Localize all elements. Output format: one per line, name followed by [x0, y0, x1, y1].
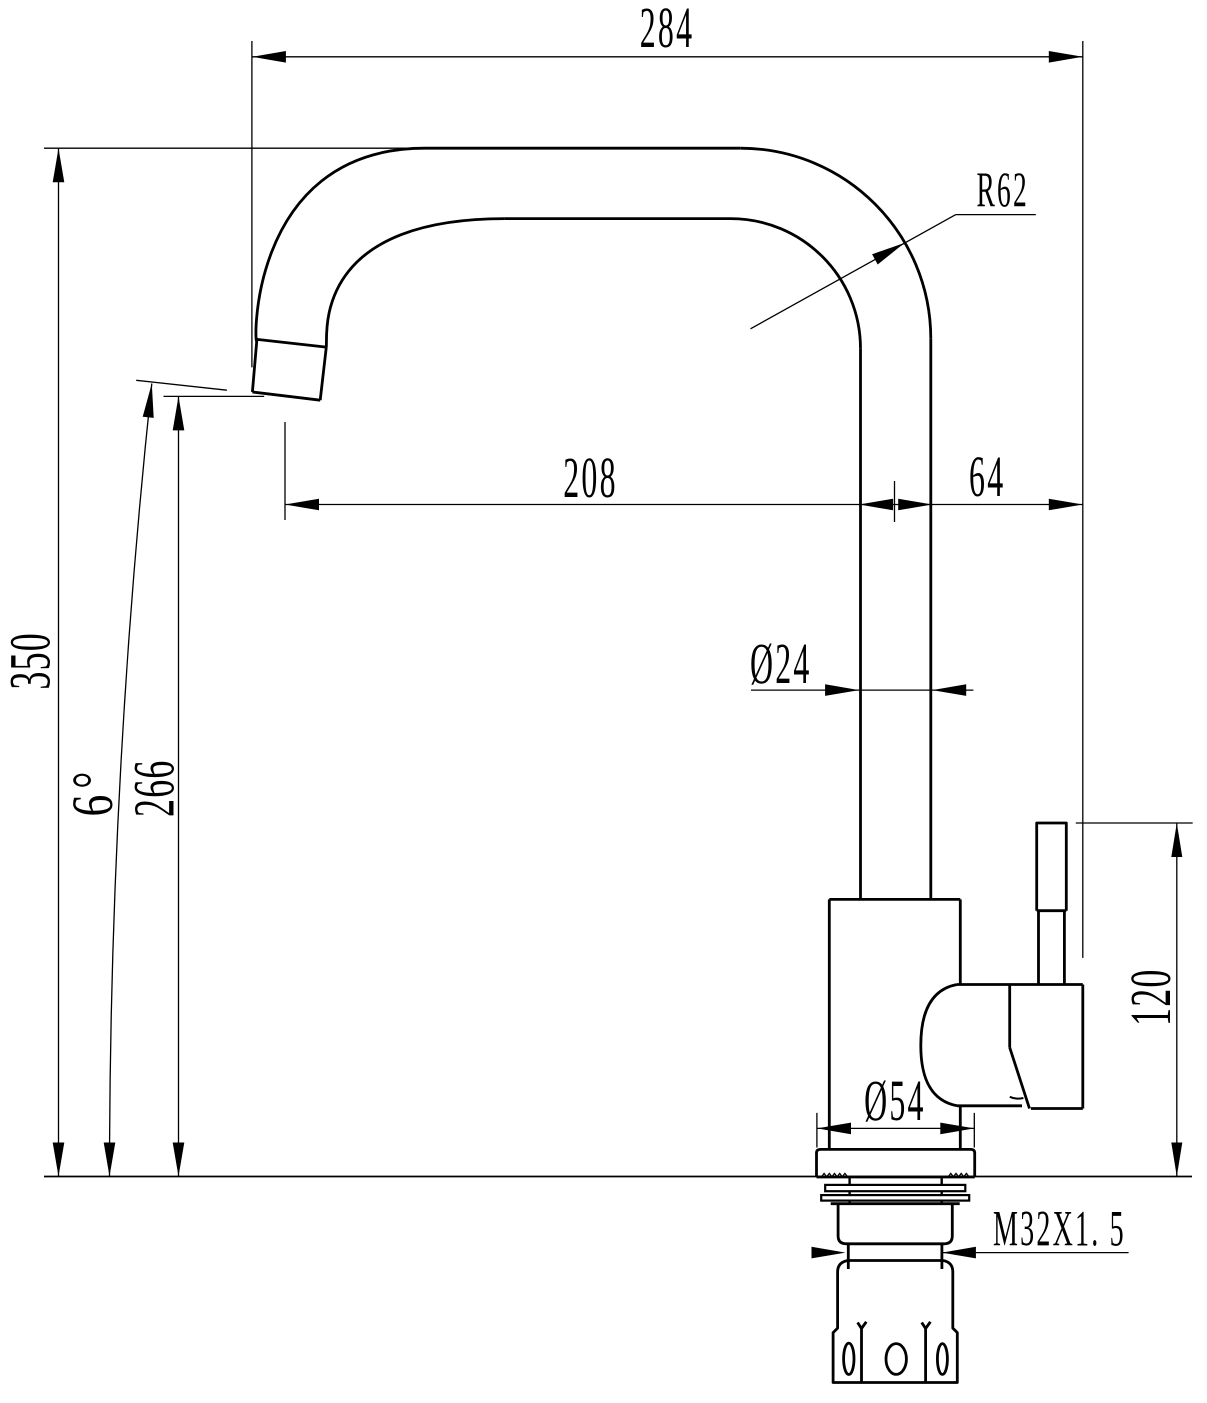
svg-text:Ø54: Ø54 — [864, 1069, 926, 1133]
svg-text:64: 64 — [969, 445, 1005, 509]
svg-text:6°: 6° — [61, 765, 125, 816]
svg-text:R62: R62 — [976, 161, 1028, 217]
svg-text:284: 284 — [640, 0, 694, 61]
svg-text:266: 266 — [123, 759, 187, 817]
svg-text:Ø24: Ø24 — [750, 632, 812, 696]
svg-text:350: 350 — [0, 632, 63, 690]
svg-text:208: 208 — [563, 446, 617, 510]
svg-text:M32X1. 5: M32X1. 5 — [993, 1200, 1126, 1257]
svg-text:120: 120 — [1119, 968, 1183, 1026]
